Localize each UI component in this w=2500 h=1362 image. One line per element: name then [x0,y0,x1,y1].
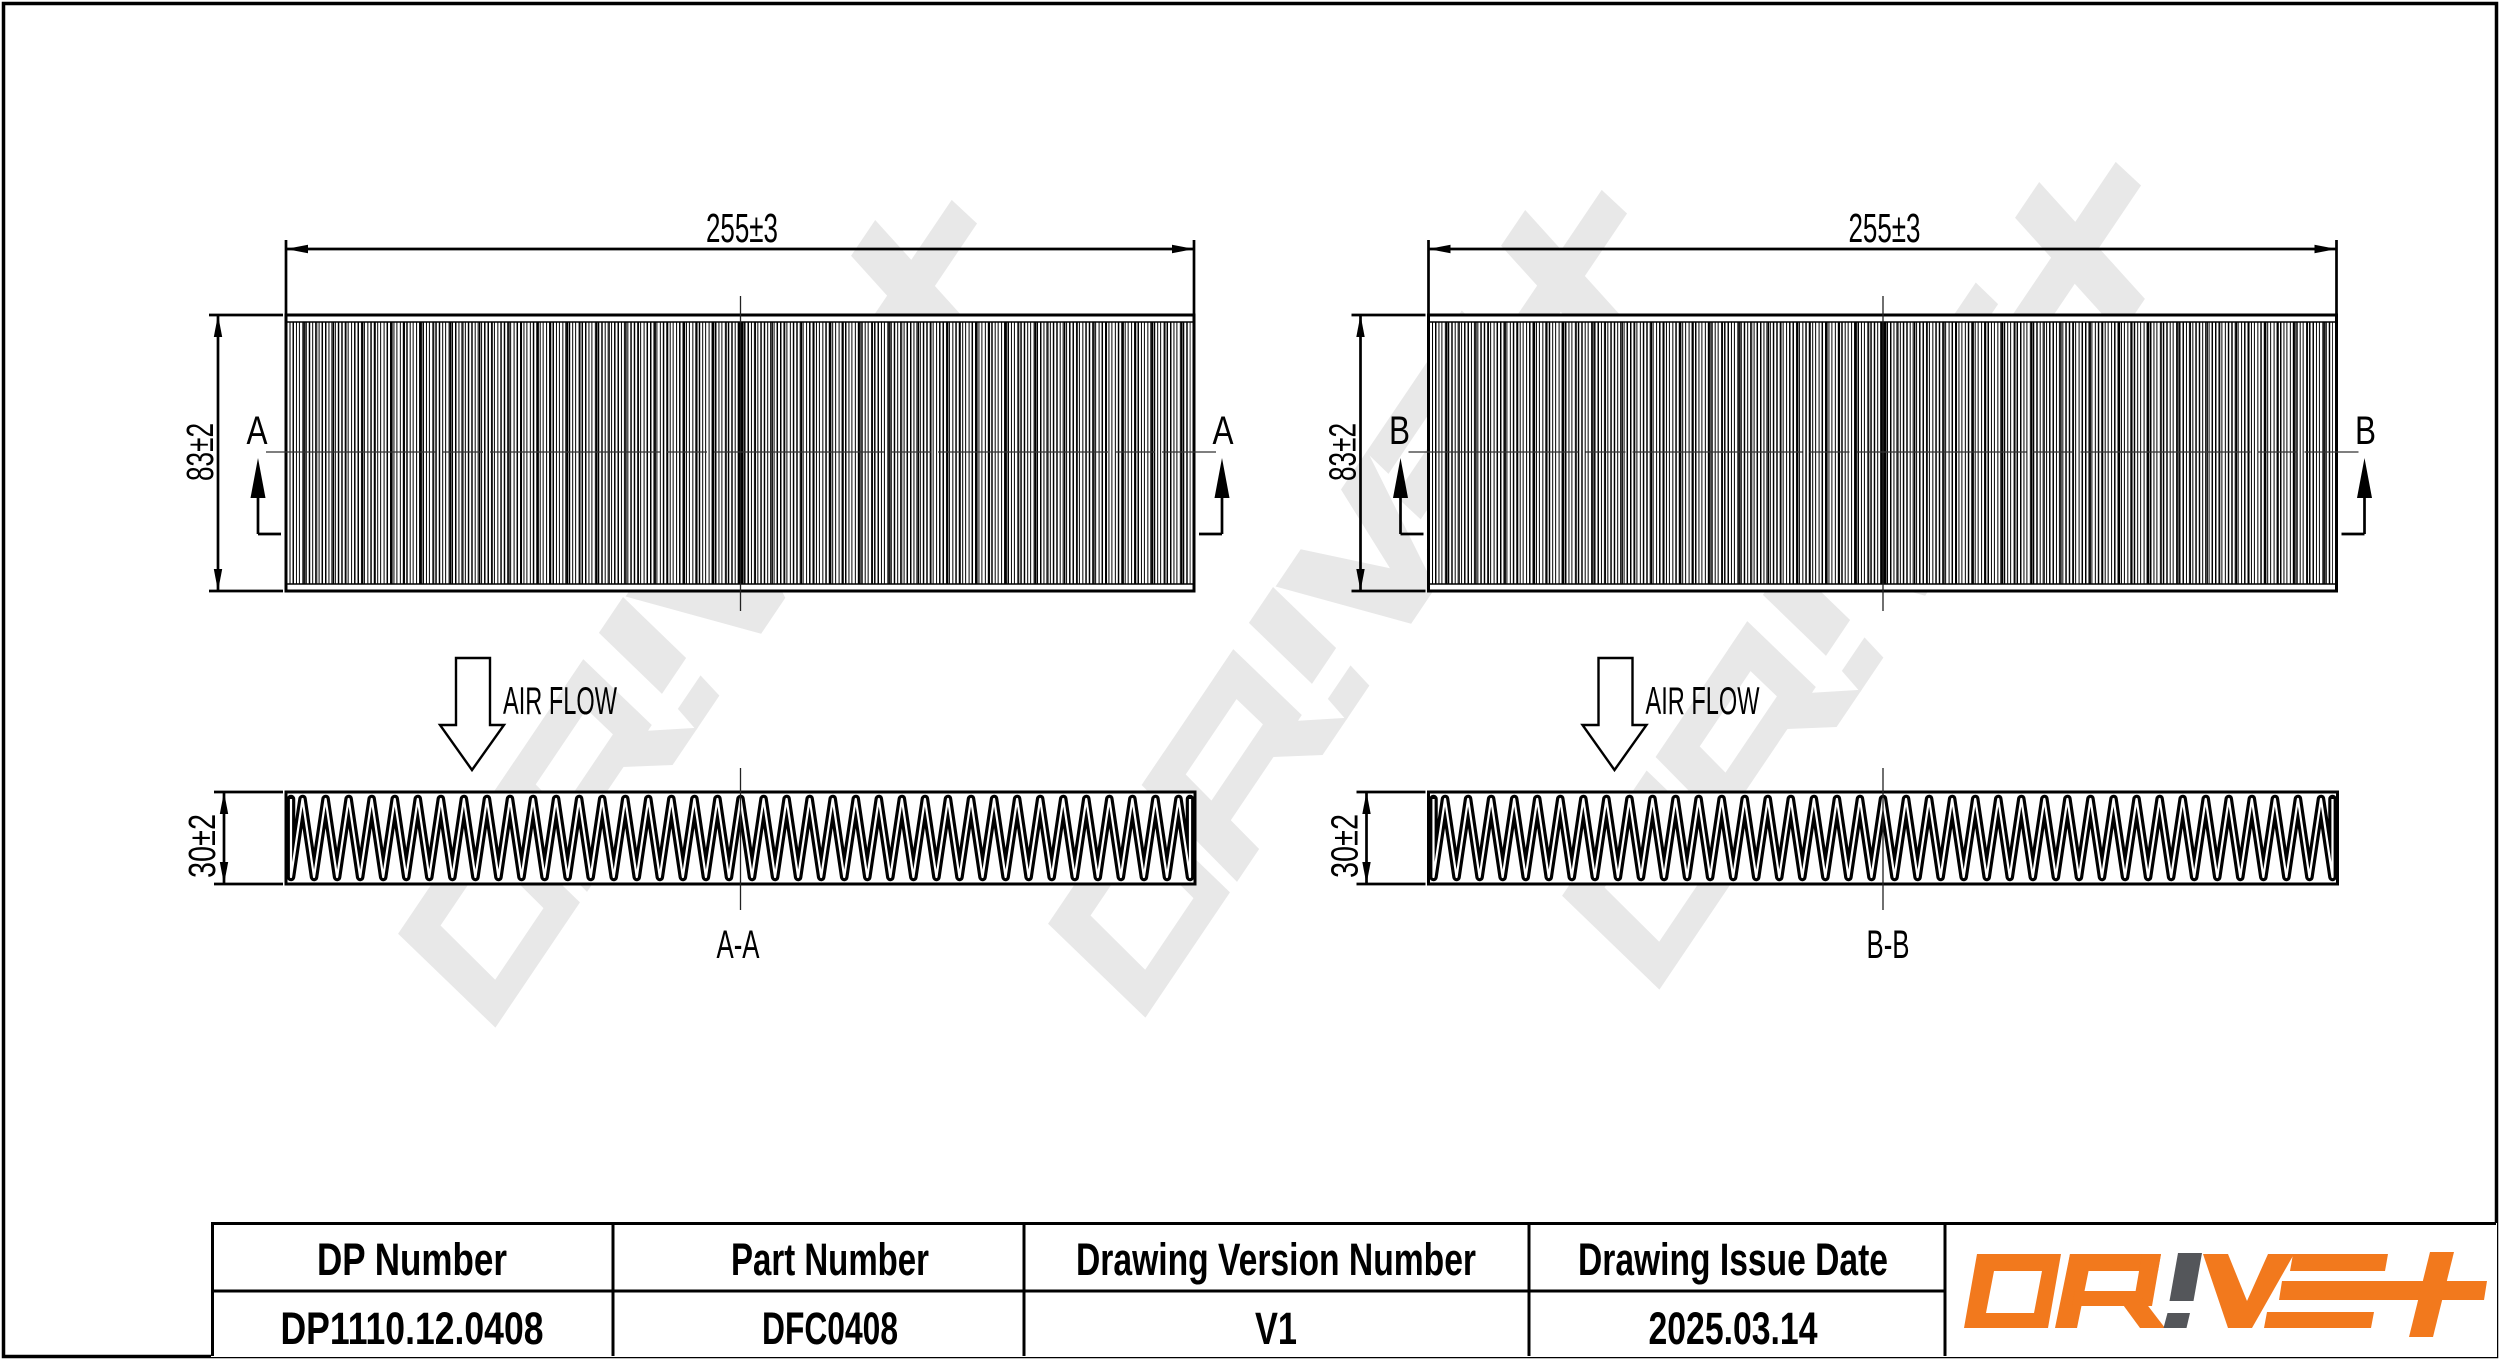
svg-text:30±2: 30±2 [1325,814,1367,878]
svg-text:83±2: 83±2 [180,423,222,481]
svg-text:Drawing Issue Date: Drawing Issue Date [1578,1234,1888,1285]
svg-text:V1: V1 [1255,1303,1297,1354]
svg-text:Part Number: Part Number [731,1234,929,1285]
svg-text:A: A [247,409,268,453]
svg-text:255±3: 255±3 [706,205,778,251]
svg-text:83±2: 83±2 [1323,423,1365,481]
svg-text:DP Number: DP Number [317,1234,507,1285]
svg-text:DP1110.12.0408: DP1110.12.0408 [281,1303,544,1354]
svg-text:Drawing Version Number: Drawing Version Number [1076,1234,1476,1285]
svg-text:2025.03.14: 2025.03.14 [1649,1303,1818,1354]
svg-text:B: B [1389,409,1410,453]
svg-text:B-B: B-B [1867,923,1910,967]
svg-text:B: B [2355,409,2376,453]
svg-text:A: A [1213,409,1234,453]
svg-text:AIR FLOW: AIR FLOW [503,680,617,723]
svg-text:AIR FLOW: AIR FLOW [1646,680,1760,723]
svg-text:30±2: 30±2 [182,814,224,878]
svg-text:DFC0408: DFC0408 [762,1303,898,1354]
svg-text:A-A: A-A [717,923,760,967]
svg-text:255±3: 255±3 [1849,205,1921,251]
